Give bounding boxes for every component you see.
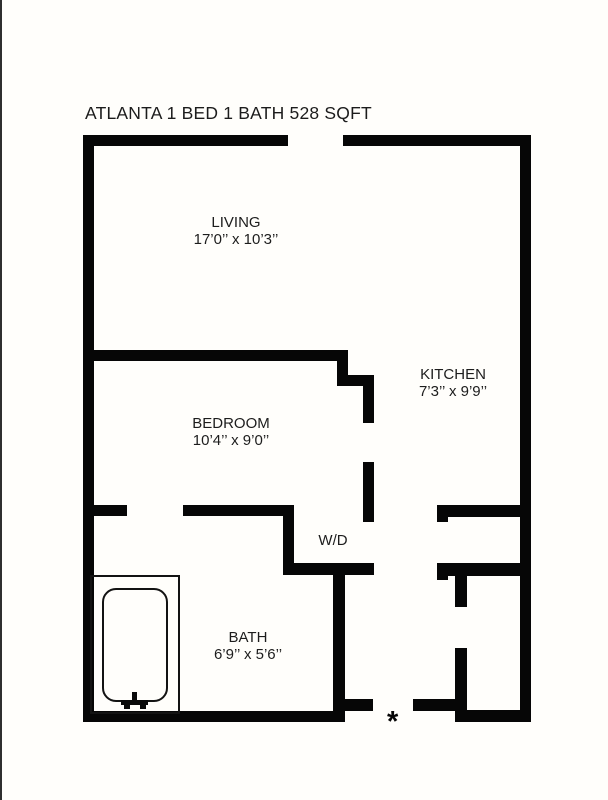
left-edge-border xyxy=(0,0,2,800)
wall-exterior-right xyxy=(520,135,531,722)
wall-bedroom-kitchen-lower xyxy=(363,462,374,522)
room-label-kitchen: KITCHEN 7’3’’ x 9’9’’ xyxy=(419,366,487,400)
room-label-bath: BATH 6’9’’ x 5’6’’ xyxy=(214,629,282,663)
floor-plan: ATLANTA 1 BED 1 BATH 528 SQFT LIVING 17’… xyxy=(0,0,608,800)
wall-kitchen-lower xyxy=(437,563,531,576)
wall-kitchen-upper xyxy=(437,505,531,517)
wall-kitchen-lower-cap xyxy=(437,563,448,580)
room-label-living: LIVING 17’0’’ x 10’3’’ xyxy=(194,214,279,248)
bathtub-faucet-foot-left xyxy=(124,705,130,709)
wall-bedroom-bottom-right xyxy=(183,505,294,516)
wall-top-left-segment xyxy=(83,135,288,146)
wall-closet-stub xyxy=(455,576,467,607)
room-name-kitchen: KITCHEN xyxy=(419,366,487,383)
room-dims-kitchen: 7’3’’ x 9’9’’ xyxy=(419,383,487,400)
bathtub xyxy=(102,588,168,702)
room-dims-bedroom: 10’4’’ x 9’0’’ xyxy=(192,432,270,449)
wall-bedroom-kitchen-upper xyxy=(363,375,374,423)
room-name-bath: BATH xyxy=(214,629,282,646)
wall-living-bedroom xyxy=(83,350,348,361)
room-name-laundry: W/D xyxy=(318,532,347,549)
wall-bath-top xyxy=(283,563,374,575)
wall-bath-right xyxy=(333,563,345,722)
room-dims-bath: 6’9’’ x 5’6’’ xyxy=(214,646,282,663)
room-dims-living: 17’0’’ x 10’3’’ xyxy=(194,231,279,248)
room-label-laundry: W/D xyxy=(318,532,347,549)
room-name-bedroom: BEDROOM xyxy=(192,415,270,432)
plan-title: ATLANTA 1 BED 1 BATH 528 SQFT xyxy=(85,104,372,123)
room-label-bedroom: BEDROOM 10’4’’ x 9’0’’ xyxy=(192,415,270,449)
room-name-living: LIVING xyxy=(194,214,279,231)
bathtub-faucet-foot-right xyxy=(140,705,146,709)
entry-marker: * xyxy=(387,708,398,737)
wall-kitchen-upper-cap xyxy=(437,505,448,522)
wall-closet-vertical xyxy=(455,648,467,722)
wall-bedroom-bottom-left xyxy=(83,505,127,516)
wall-top-right-segment xyxy=(343,135,531,146)
